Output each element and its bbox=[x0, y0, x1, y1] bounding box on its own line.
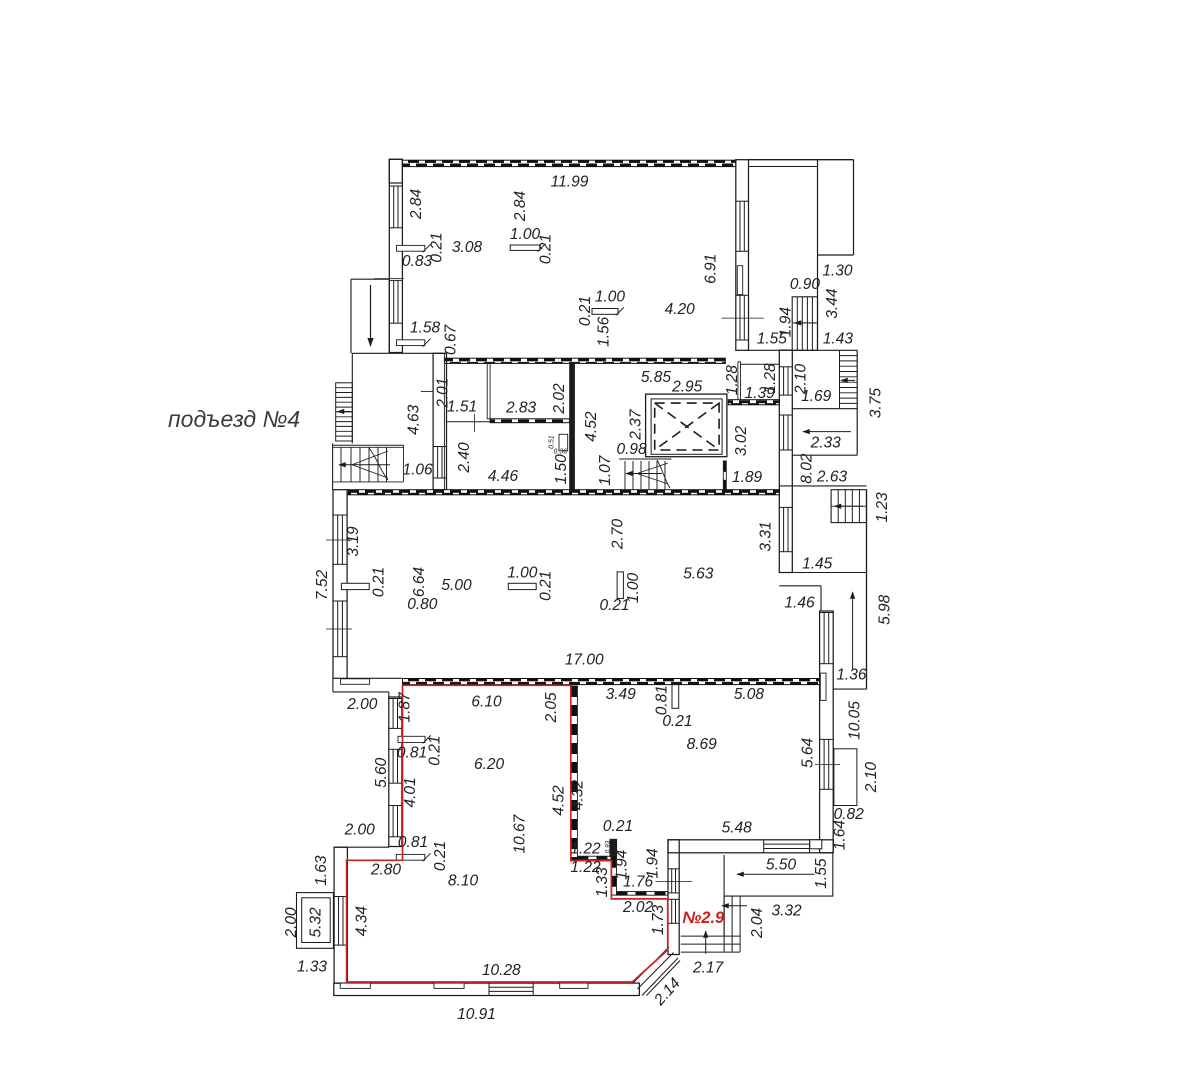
svg-text:6.91: 6.91 bbox=[703, 254, 720, 284]
svg-text:0.21: 0.21 bbox=[577, 296, 594, 326]
svg-text:3.75: 3.75 bbox=[868, 388, 885, 419]
svg-text:1.00: 1.00 bbox=[595, 289, 626, 306]
svg-text:1.30: 1.30 bbox=[822, 263, 853, 280]
svg-text:1.51: 1.51 bbox=[447, 398, 477, 415]
svg-text:5.32: 5.32 bbox=[308, 907, 325, 938]
svg-text:2.40: 2.40 bbox=[456, 442, 473, 474]
svg-text:0.21: 0.21 bbox=[537, 571, 554, 601]
svg-text:2.37: 2.37 bbox=[628, 408, 645, 441]
svg-text:1.87: 1.87 bbox=[397, 691, 414, 723]
svg-text:0.67: 0.67 bbox=[442, 323, 459, 355]
svg-text:0.83: 0.83 bbox=[402, 253, 433, 270]
svg-text:5.60: 5.60 bbox=[373, 757, 390, 788]
svg-text:6.10: 6.10 bbox=[471, 693, 502, 710]
svg-text:2.05: 2.05 bbox=[543, 692, 560, 724]
svg-text:1.56: 1.56 bbox=[596, 316, 613, 347]
svg-text:2.33: 2.33 bbox=[810, 434, 842, 451]
svg-text:1.43: 1.43 bbox=[823, 331, 854, 348]
svg-text:1.46: 1.46 bbox=[784, 595, 815, 612]
svg-text:2.83: 2.83 bbox=[505, 399, 537, 416]
svg-text:17.00: 17.00 bbox=[565, 651, 604, 668]
svg-text:1.00: 1.00 bbox=[507, 564, 538, 581]
svg-text:1.06: 1.06 bbox=[403, 461, 434, 478]
svg-text:1.94: 1.94 bbox=[777, 307, 794, 338]
svg-text:1.33: 1.33 bbox=[594, 867, 611, 898]
svg-text:1.50: 1.50 bbox=[553, 454, 570, 485]
svg-text:1.63: 1.63 bbox=[313, 855, 330, 886]
svg-text:10.05: 10.05 bbox=[847, 701, 864, 740]
svg-text:0.80: 0.80 bbox=[407, 596, 438, 613]
svg-text:2.95: 2.95 bbox=[671, 379, 703, 396]
svg-text:3.44: 3.44 bbox=[824, 288, 841, 319]
svg-text:2.02: 2.02 bbox=[622, 899, 654, 916]
svg-text:4.52: 4.52 bbox=[551, 785, 568, 816]
svg-text:0.98: 0.98 bbox=[617, 441, 648, 458]
svg-text:2.84: 2.84 bbox=[408, 189, 425, 221]
svg-text:1.36: 1.36 bbox=[836, 667, 867, 684]
svg-text:1.00: 1.00 bbox=[510, 226, 541, 243]
svg-text:6.20: 6.20 bbox=[474, 756, 505, 773]
svg-text:1.58: 1.58 bbox=[410, 320, 441, 337]
svg-text:7.52: 7.52 bbox=[314, 570, 331, 601]
svg-text:1.89: 1.89 bbox=[732, 469, 763, 486]
svg-text:1.69: 1.69 bbox=[801, 388, 832, 405]
svg-text:8.02: 8.02 bbox=[799, 453, 816, 484]
svg-text:3.08: 3.08 bbox=[452, 239, 483, 256]
svg-text:0.36: 0.36 bbox=[553, 449, 567, 456]
svg-text:2.84: 2.84 bbox=[512, 191, 529, 223]
svg-text:5.85: 5.85 bbox=[641, 369, 672, 386]
svg-text:3.31: 3.31 bbox=[758, 521, 775, 551]
svg-text:0.93: 0.93 bbox=[605, 840, 612, 853]
svg-text:0.21: 0.21 bbox=[603, 818, 633, 835]
svg-text:3.49: 3.49 bbox=[606, 686, 637, 703]
svg-text:4.01: 4.01 bbox=[402, 777, 419, 807]
svg-text:4.20: 4.20 bbox=[665, 301, 696, 318]
svg-text:5.48: 5.48 bbox=[722, 819, 753, 836]
svg-text:1.33: 1.33 bbox=[297, 958, 328, 975]
svg-text:3.19: 3.19 bbox=[345, 526, 362, 557]
svg-text:1.22: 1.22 bbox=[570, 840, 601, 857]
svg-text:2.00: 2.00 bbox=[283, 907, 300, 939]
svg-text:4.52: 4.52 bbox=[583, 411, 600, 442]
svg-text:5.00: 5.00 bbox=[441, 577, 472, 594]
svg-text:3.02: 3.02 bbox=[733, 426, 750, 457]
svg-text:0.21: 0.21 bbox=[370, 567, 387, 597]
svg-text:3.32: 3.32 bbox=[772, 902, 803, 919]
svg-text:1.07: 1.07 bbox=[597, 454, 614, 486]
svg-text:№2.9: №2.9 bbox=[682, 909, 725, 927]
svg-text:2.63: 2.63 bbox=[816, 468, 848, 485]
svg-text:0.51: 0.51 bbox=[548, 435, 555, 449]
svg-text:0.81: 0.81 bbox=[398, 834, 428, 851]
svg-text:2.00: 2.00 bbox=[344, 821, 376, 838]
svg-text:5.08: 5.08 bbox=[734, 686, 765, 703]
svg-text:5.98: 5.98 bbox=[877, 594, 894, 625]
svg-text:2.70: 2.70 bbox=[609, 519, 626, 551]
svg-text:11.99: 11.99 bbox=[551, 173, 589, 190]
svg-text:2.00: 2.00 bbox=[346, 696, 378, 713]
svg-text:1.64: 1.64 bbox=[832, 820, 849, 851]
svg-text:1.28: 1.28 bbox=[724, 365, 741, 396]
svg-text:4.63: 4.63 bbox=[406, 404, 423, 435]
svg-text:1.55: 1.55 bbox=[813, 858, 830, 889]
svg-text:4.32: 4.32 bbox=[570, 780, 587, 811]
svg-text:0.21: 0.21 bbox=[427, 736, 444, 766]
svg-text:2.04: 2.04 bbox=[749, 907, 766, 939]
svg-text:5.50: 5.50 bbox=[766, 857, 797, 874]
svg-text:1.76: 1.76 bbox=[623, 873, 654, 890]
svg-text:1.23: 1.23 bbox=[874, 492, 891, 523]
svg-text:2.10: 2.10 bbox=[863, 762, 880, 794]
svg-text:1.00: 1.00 bbox=[625, 573, 642, 604]
svg-text:0.21: 0.21 bbox=[662, 713, 692, 730]
svg-text:5.64: 5.64 bbox=[799, 737, 816, 768]
svg-text:2.80: 2.80 bbox=[370, 862, 402, 879]
svg-text:0.21: 0.21 bbox=[432, 841, 449, 871]
svg-text:2.02: 2.02 bbox=[551, 383, 568, 415]
svg-text:1.39: 1.39 bbox=[745, 385, 776, 402]
svg-text:1.73: 1.73 bbox=[650, 905, 667, 936]
svg-text:4.34: 4.34 bbox=[354, 906, 371, 937]
svg-text:4.46: 4.46 bbox=[488, 468, 519, 485]
svg-text:2.17: 2.17 bbox=[692, 959, 725, 976]
svg-text:0.90: 0.90 bbox=[790, 276, 821, 293]
svg-text:0.81: 0.81 bbox=[654, 685, 671, 715]
svg-text:8.69: 8.69 bbox=[687, 736, 718, 753]
svg-text:10.67: 10.67 bbox=[511, 813, 528, 853]
svg-text:8.10: 8.10 bbox=[448, 872, 479, 889]
svg-text:0.21: 0.21 bbox=[538, 234, 555, 264]
svg-text:5.63: 5.63 bbox=[683, 565, 714, 582]
svg-text:подъезд №4: подъезд №4 bbox=[168, 406, 300, 432]
svg-text:10.28: 10.28 bbox=[482, 962, 521, 979]
svg-text:10.91: 10.91 bbox=[457, 1006, 496, 1023]
svg-text:6.64: 6.64 bbox=[411, 567, 428, 598]
svg-text:1.45: 1.45 bbox=[802, 555, 833, 572]
svg-text:0.81: 0.81 bbox=[397, 744, 427, 761]
